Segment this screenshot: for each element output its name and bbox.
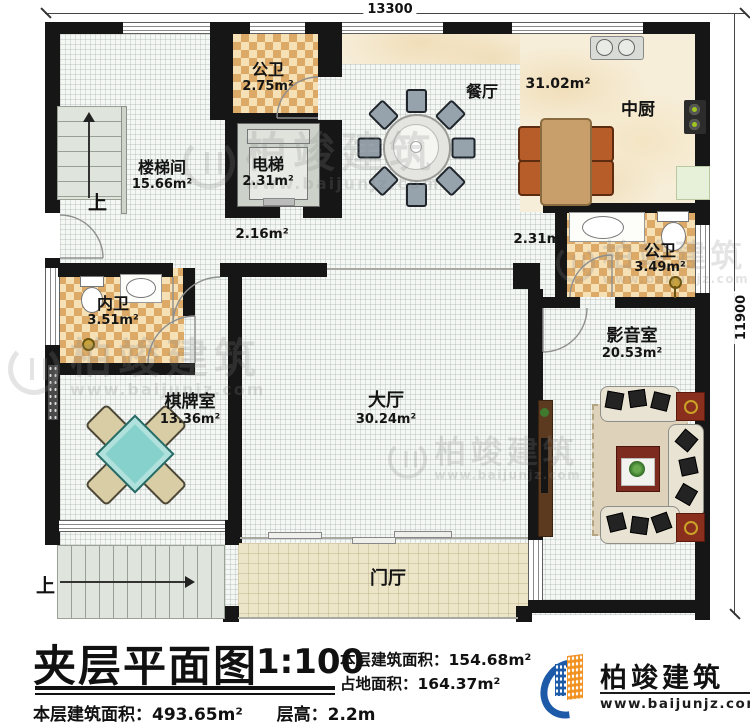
- entry-stairs-arrow: [185, 576, 195, 588]
- wall: [516, 606, 532, 622]
- window: [45, 268, 60, 345]
- wall: [228, 277, 242, 543]
- stairs-direction-line: [88, 120, 90, 198]
- window: [59, 520, 225, 532]
- wall: [183, 268, 195, 316]
- room-name: 餐厅: [466, 82, 498, 101]
- corridor-area-left: 2.16m²: [235, 226, 288, 242]
- room-area: 3.49m²: [634, 260, 685, 276]
- brand-name: 柏竣建筑: [600, 656, 724, 695]
- opening-line: [327, 268, 513, 270]
- logo-tower-orange: [567, 654, 583, 700]
- room-label-bathroom-inner: 内卫 3.51m²: [87, 294, 138, 329]
- brand-website: www.baijunjz.com: [600, 692, 750, 712]
- wall: [615, 297, 695, 308]
- sink-basin-icon: [596, 39, 613, 56]
- total-area-value: 493.65m²: [152, 705, 243, 725]
- sofa-cushion: [605, 391, 625, 411]
- room-label-media: 影音室 20.53m²: [602, 326, 662, 362]
- room-name: 公卫: [634, 241, 685, 260]
- wall: [528, 600, 710, 613]
- corridor-area-right: 2.31m²: [513, 231, 566, 247]
- chair: [406, 89, 427, 113]
- toilet-icon: [657, 211, 689, 222]
- room-name: 中厨: [621, 100, 655, 120]
- corridor-area: 2.16m²: [235, 226, 288, 242]
- floor-plan-page: 上 上: [0, 0, 750, 728]
- wall: [318, 34, 342, 77]
- room-label-bathroom-right: 公卫 3.49m²: [634, 241, 685, 276]
- chair: [452, 138, 476, 159]
- sofa-cushion: [630, 516, 649, 535]
- side-table-ornament: [684, 521, 698, 535]
- plant-icon: [629, 461, 645, 477]
- window: [512, 22, 643, 34]
- wall: [220, 263, 327, 277]
- room-area: 31.02m²: [525, 76, 590, 93]
- room-label-stairwell: 楼梯间 15.66m²: [132, 158, 192, 193]
- dimension-right-label: 11900: [734, 291, 749, 344]
- floor-area-label: 本层建筑面积：: [340, 651, 449, 669]
- total-area-row: 本层建筑面积：493.65m² 层高：2.2m: [33, 700, 375, 725]
- sink-icon: [582, 216, 624, 239]
- window: [695, 225, 710, 293]
- wall: [225, 113, 318, 123]
- elevator-door: [263, 198, 295, 206]
- floor-area-row: 本层建筑面积：154.68m²: [340, 648, 531, 670]
- burner-icon: [689, 104, 700, 115]
- dining-table-center: [410, 141, 422, 153]
- sliding-door-panel: [268, 532, 322, 539]
- room-name: 影音室: [602, 326, 662, 346]
- room-name: 门厅: [370, 568, 406, 590]
- wall: [210, 34, 233, 120]
- wall: [225, 113, 237, 215]
- room-name: 棋牌室: [160, 392, 220, 412]
- elevator-counterweight: [247, 129, 310, 144]
- dimension-top-label: 13300: [363, 2, 416, 17]
- window: [342, 22, 443, 34]
- plan-title: 夹层平面图: [33, 632, 258, 694]
- room-label-kitchen: 中厨: [621, 100, 655, 120]
- site-area-label: 占地面积：: [340, 675, 418, 693]
- room-name: 公卫: [242, 60, 293, 79]
- hall-cabinet: [48, 365, 58, 420]
- floor-drain-icon: [82, 338, 95, 351]
- kitchen-table: [540, 118, 592, 206]
- room-area: 15.66m²: [132, 177, 192, 193]
- wall: [225, 520, 239, 545]
- wall: [443, 22, 512, 34]
- site-area-value: 164.37m²: [418, 675, 501, 693]
- wall: [318, 120, 342, 205]
- sliding-door-panel: [352, 537, 396, 544]
- room-area-dining: 31.02m²: [525, 76, 590, 93]
- height-value: 2.2m: [328, 705, 376, 725]
- brand-logo-icon: [542, 652, 596, 714]
- sofa-cushion: [628, 389, 647, 408]
- room-area: 30.24m²: [356, 412, 416, 428]
- room-name: 内卫: [87, 294, 138, 313]
- logo-tower-blue: [555, 664, 566, 696]
- room-label-hall: 大厅 30.24m²: [356, 390, 416, 427]
- room-name: 大厅: [356, 390, 416, 412]
- floor-area-value: 154.68m²: [449, 651, 532, 669]
- site-area-row: 占地面积：164.37m²: [340, 672, 500, 694]
- dimension-tick: [729, 608, 740, 619]
- room-label-game: 棋牌室 13.36m²: [160, 392, 220, 428]
- wall: [210, 22, 250, 34]
- sliding-door-panel: [394, 531, 452, 538]
- side-table-ornament: [684, 400, 698, 414]
- room-label-dining: 餐厅: [466, 82, 498, 101]
- stairs-up-label: 上: [88, 188, 107, 215]
- sink-basin-icon: [618, 39, 635, 56]
- room-label-foyer: 门厅: [370, 568, 406, 590]
- room-area: 2.75m²: [242, 79, 293, 95]
- window: [528, 540, 543, 600]
- wall: [555, 212, 567, 297]
- stairs-up-arrow: [83, 112, 95, 122]
- wall: [305, 22, 342, 34]
- corridor-area: 2.31m²: [513, 231, 566, 247]
- wall: [58, 363, 195, 375]
- foyer-edge: [238, 617, 518, 619]
- burner-icon: [689, 119, 700, 130]
- wall: [45, 520, 59, 545]
- wall: [223, 606, 239, 622]
- total-area-label: 本层建筑面积：: [33, 705, 152, 725]
- entry-stairs-direction-line: [60, 581, 185, 583]
- entry-up-label: 上: [36, 571, 55, 598]
- floor-drain-stem: [674, 286, 676, 298]
- window: [250, 22, 305, 34]
- plant-icon: [540, 408, 549, 417]
- sofa-cushion: [678, 456, 698, 476]
- stairs-railing: [121, 106, 127, 214]
- room-label-bathroom-top: 公卫 2.75m²: [242, 60, 293, 95]
- chair: [406, 183, 427, 207]
- room-label-elevator: 电梯 2.31m²: [242, 155, 293, 190]
- room-area: 2.31m²: [242, 174, 293, 190]
- toilet-icon: [80, 276, 104, 287]
- window: [123, 22, 210, 34]
- room-area: 20.53m²: [602, 346, 662, 362]
- title-underline: [35, 693, 335, 695]
- height-label: 层高：: [277, 705, 328, 725]
- chair: [358, 138, 382, 159]
- title-underline: [35, 686, 335, 690]
- kitchen-counter: [676, 166, 710, 200]
- room-name: 楼梯间: [132, 158, 192, 177]
- room-area: 13.36m²: [160, 412, 220, 428]
- wall: [513, 263, 540, 289]
- room-area: 3.51m²: [87, 313, 138, 329]
- tv-icon: [541, 438, 548, 493]
- room-name: 电梯: [242, 155, 293, 174]
